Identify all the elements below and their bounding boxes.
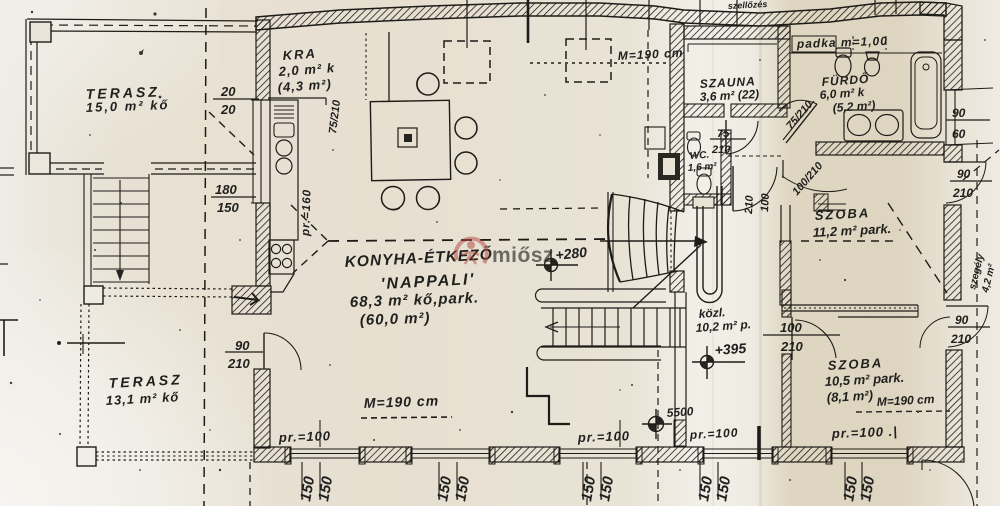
svg-text:1,6 m²: 1,6 m² xyxy=(687,161,717,174)
svg-text:210: 210 xyxy=(743,194,756,215)
svg-text:KRA: KRA xyxy=(282,46,317,63)
svg-text:210: 210 xyxy=(711,144,731,156)
svg-text:20: 20 xyxy=(220,102,236,117)
svg-text:pr.=100: pr.=100 xyxy=(278,428,332,445)
svg-text:210: 210 xyxy=(780,339,803,354)
svg-text:(60,0 m²): (60,0 m²) xyxy=(360,310,431,329)
svg-text:5500: 5500 xyxy=(666,404,694,420)
svg-text:pr.=160: pr.=160 xyxy=(300,189,314,237)
svg-text:15,0 m² kő: 15,0 m² kő xyxy=(86,97,170,115)
svg-text:+280: +280 xyxy=(555,244,588,263)
svg-text:90: 90 xyxy=(235,338,250,353)
svg-text:210: 210 xyxy=(952,186,973,200)
svg-text:miősz: miősz xyxy=(492,244,554,267)
svg-text:90: 90 xyxy=(957,167,971,181)
svg-text:(8,1 m²): (8,1 m²) xyxy=(826,388,873,405)
svg-text:+395: +395 xyxy=(714,340,747,358)
svg-text:pr.=100: pr.=100 xyxy=(688,425,738,442)
svg-text:90: 90 xyxy=(955,313,969,327)
svg-text:(5,2 m²): (5,2 m²) xyxy=(832,98,876,115)
svg-text:pr.=100: pr.=100 xyxy=(577,428,631,445)
svg-text:pr.=100 .|: pr.=100 .| xyxy=(831,424,899,441)
svg-text:SZOBA: SZOBA xyxy=(827,355,883,373)
svg-text:180: 180 xyxy=(215,182,237,197)
svg-text:SZOBA: SZOBA xyxy=(814,205,870,223)
svg-text:100: 100 xyxy=(759,192,772,212)
svg-text:150: 150 xyxy=(217,200,239,215)
svg-text:WC.: WC. xyxy=(689,150,709,162)
svg-text:M=190 cm: M=190 cm xyxy=(364,392,440,411)
svg-text:210: 210 xyxy=(227,356,250,371)
svg-text:90: 90 xyxy=(952,106,966,120)
svg-text:60: 60 xyxy=(952,127,966,141)
svg-text:20: 20 xyxy=(220,84,236,99)
svg-text:210: 210 xyxy=(950,332,971,346)
svg-text:75: 75 xyxy=(717,128,730,140)
svg-text:100: 100 xyxy=(780,320,802,335)
